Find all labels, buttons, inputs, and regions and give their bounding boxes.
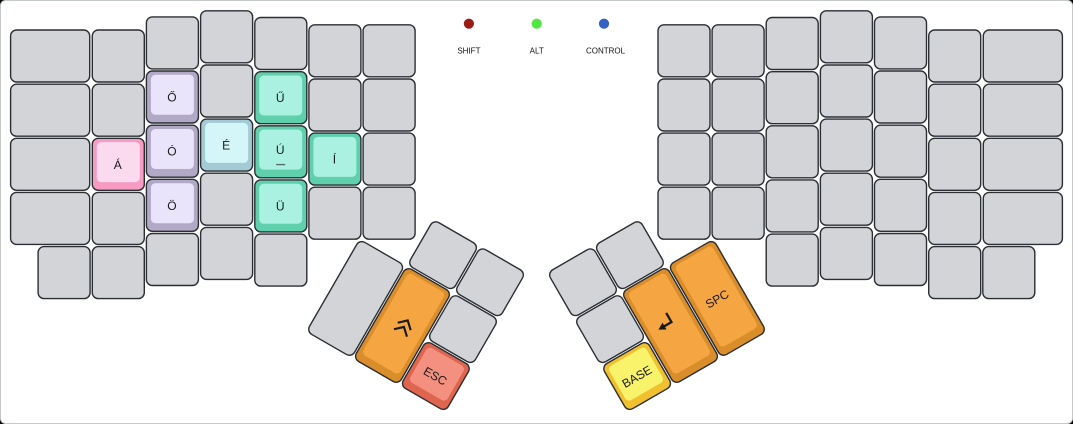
svg-text:CONTROL: CONTROL	[586, 47, 626, 56]
svg-text:Ő: Ő	[167, 90, 176, 105]
svg-text:Ó: Ó	[167, 144, 176, 159]
svg-text:Ű: Ű	[276, 90, 285, 105]
svg-text:Ö: Ö	[167, 199, 176, 213]
svg-text:Á: Á	[114, 157, 122, 172]
svg-text:Ü: Ü	[276, 200, 285, 214]
svg-text:SHIFT: SHIFT	[457, 47, 480, 56]
svg-text:É: É	[222, 138, 230, 153]
svg-text:Ú: Ú	[276, 142, 285, 157]
svg-text:ALT: ALT	[530, 47, 544, 56]
